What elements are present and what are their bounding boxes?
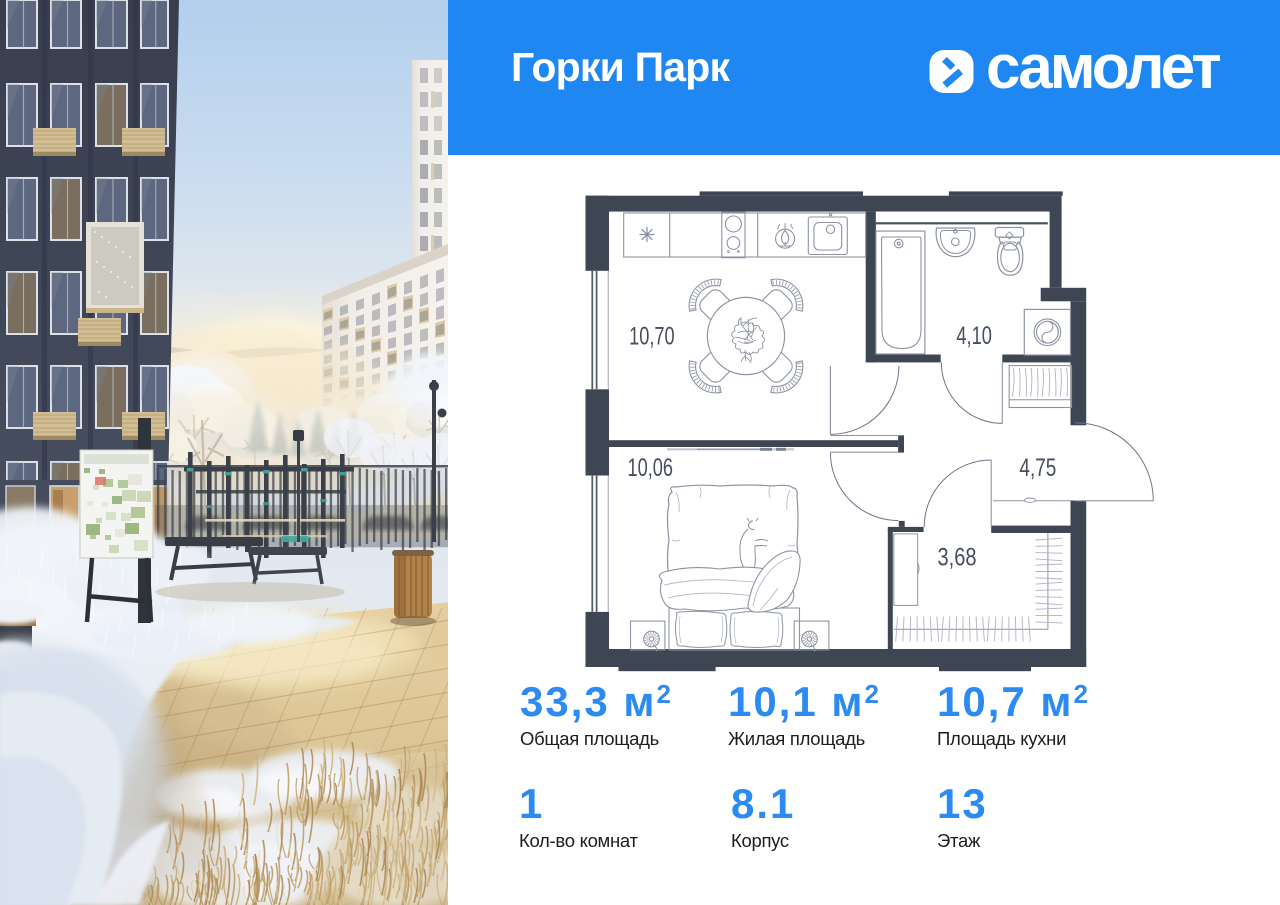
- svg-text:4,75: 4,75: [1019, 454, 1056, 482]
- svg-text:10,70: 10,70: [629, 323, 675, 351]
- svg-text:4,10: 4,10: [956, 322, 992, 350]
- svg-text:10,06: 10,06: [628, 454, 674, 482]
- svg-text:3,68: 3,68: [938, 544, 977, 572]
